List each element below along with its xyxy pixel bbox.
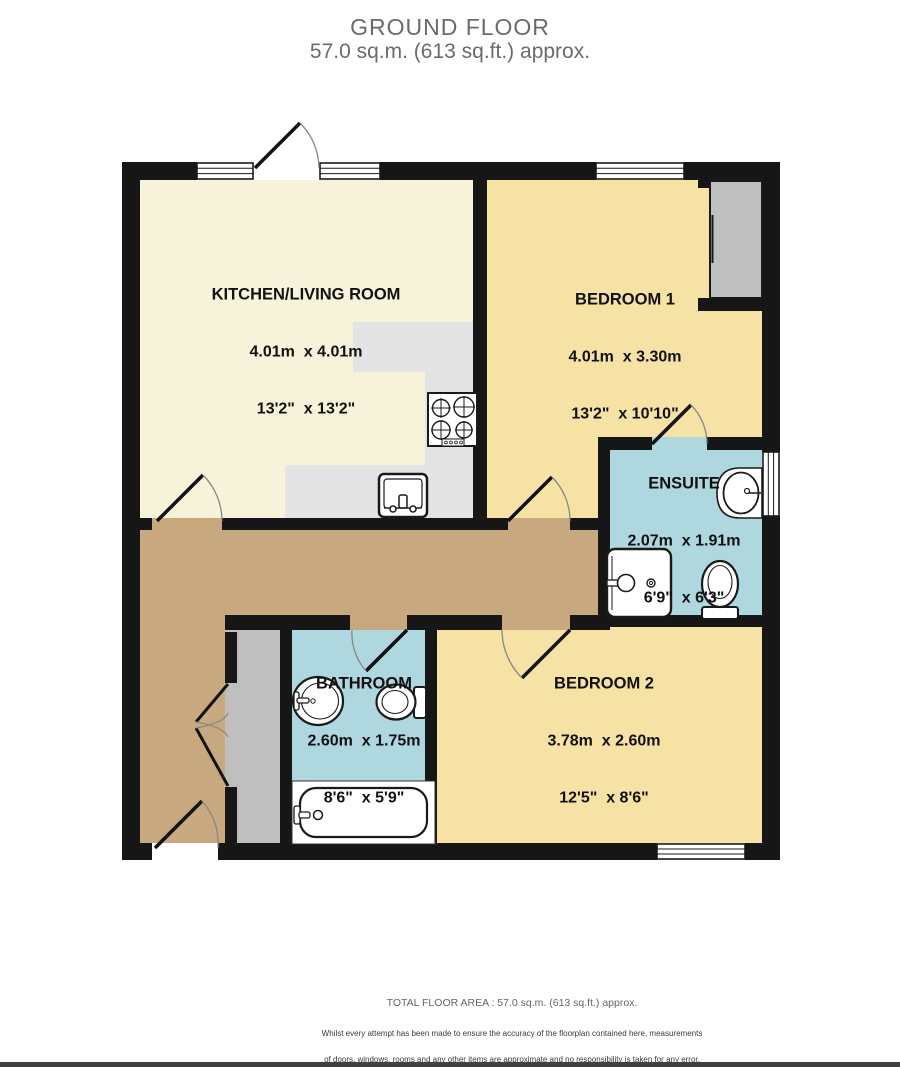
bathroom-label: BATHROOM 2.60m x 1.75m 8'6" x 5'9" <box>308 637 421 846</box>
wall-cupboard-left-b <box>225 787 237 843</box>
bedroom1-label: BEDROOM 1 4.01m x 3.30m 13'2" x 10'10" <box>569 253 682 462</box>
bedroom2-metric: 3.78m x 2.60m <box>548 732 661 751</box>
wardrobe <box>710 181 762 298</box>
window-bedroom1 <box>596 163 684 179</box>
total-floor-area: TOTAL FLOOR AREA : 57.0 sq.m. (613 sq.ft… <box>387 997 638 1009</box>
bathroom-metric: 2.60m x 1.75m <box>308 732 421 751</box>
hall-floor-main <box>140 518 610 630</box>
kitchen-sink-icon <box>379 474 427 517</box>
wall-cupboard-bathroom <box>280 620 292 843</box>
disclaimer: Whilst every attempt has been made to en… <box>320 1012 705 1067</box>
wall-hall-bottom-b <box>407 615 502 630</box>
wall-hall-top-b <box>222 518 508 530</box>
door-kitchen-exterior <box>255 123 319 168</box>
disclaimer-line-1: Whilst every attempt has been made to en… <box>320 1030 705 1039</box>
floorplan-drawing <box>0 0 900 1067</box>
wall-right-a <box>762 162 780 452</box>
ensuite-imperial: 6'9" x 6'3" <box>628 589 741 608</box>
wall-bottom-a <box>122 843 152 860</box>
bathroom-imperial: 8'6" x 5'9" <box>308 789 421 808</box>
wall-bottom-c <box>745 843 780 860</box>
window-bedroom2 <box>657 844 745 859</box>
bedroom2-name: BEDROOM 2 <box>548 675 661 694</box>
bedroom2-imperial: 12'5" x 8'6" <box>548 789 661 808</box>
wall-bottom-b <box>218 843 657 860</box>
bedroom1-name: BEDROOM 1 <box>569 291 682 310</box>
wardrobe-body <box>710 181 762 298</box>
wall-left <box>122 162 140 860</box>
ensuite-label: ENSUITE 2.07m x 1.91m 6'9" x 6'3" <box>628 437 741 646</box>
window-ensuite <box>763 452 779 516</box>
wall-hall-top-a <box>140 518 152 530</box>
hall-floor-lower <box>140 630 225 843</box>
wall-wardrobe-stub <box>698 180 710 188</box>
bedroom1-metric: 4.01m x 3.30m <box>569 348 682 367</box>
wall-hall-top-c <box>570 518 598 530</box>
kitchen-metric: 4.01m x 4.01m <box>212 343 401 362</box>
bottom-border-bar <box>0 1062 900 1067</box>
floorplan-page: GROUND FLOOR 57.0 sq.m. (613 sq.ft.) app… <box>0 0 900 1067</box>
wall-kitchen-bedroom1 <box>473 180 487 530</box>
window-kitchen-left <box>197 163 253 179</box>
bedroom2-label: BEDROOM 2 3.78m x 2.60m 12'5" x 8'6" <box>548 637 661 846</box>
wall-wardrobe-bottom <box>698 298 762 311</box>
bathroom-name: BATHROOM <box>308 675 421 694</box>
kitchen-imperial: 13'2" x 13'2" <box>212 400 401 419</box>
hob-icon <box>428 393 477 446</box>
kitchen-name: KITCHEN/LIVING ROOM <box>212 286 401 305</box>
window-kitchen-right <box>320 163 380 179</box>
bedroom1-imperial: 13'2" x 10'10" <box>569 405 682 424</box>
kitchen-label: KITCHEN/LIVING ROOM 4.01m x 4.01m 13'2" … <box>212 248 401 457</box>
wall-cupboard-left-a <box>225 632 237 683</box>
ensuite-name: ENSUITE <box>628 475 741 494</box>
wall-top-b <box>380 162 596 180</box>
wall-right-b <box>762 516 780 860</box>
ensuite-metric: 2.07m x 1.91m <box>628 532 741 551</box>
